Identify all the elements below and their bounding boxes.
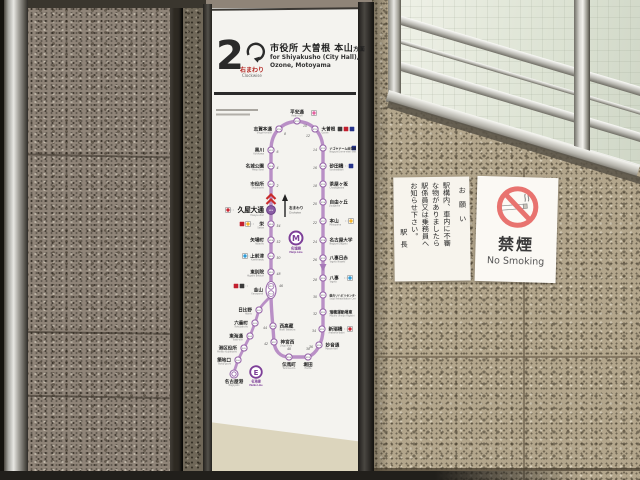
station-M16: M16自由ヶ丘Jiyugaoka20 — [313, 199, 348, 208]
no-smoking-jp: 禁煙 — [475, 230, 557, 256]
clockwise-label-en: Clockwise — [242, 73, 262, 78]
svg-text:Kurokawa: Kurokawa — [253, 153, 264, 156]
transfer-icon-sakuradori — [347, 326, 352, 331]
svg-text:M24: M24 — [317, 345, 322, 347]
svg-text:M14: M14 — [321, 166, 326, 168]
svg-text:44: 44 — [263, 326, 267, 330]
sign-frame — [358, 2, 374, 480]
svg-text:Meiko Line: Meiko Line — [249, 384, 263, 387]
svg-text:M08: M08 — [269, 166, 274, 168]
station-E07: 名古屋港Nagoyako — [225, 370, 244, 387]
transfer-icon-yutorito — [349, 164, 354, 169]
station-M05: M05栄Sakae54 — [240, 221, 281, 230]
svg-text:Tokai-dori: Tokai-dori — [232, 339, 243, 342]
svg-text:M28: M28 — [271, 326, 276, 328]
clockwise-loop-icon — [245, 41, 267, 63]
platform-sign: 2 右まわり Clockwise 市役所 大曽根 本山方面 for Shiyak… — [212, 8, 358, 480]
station-M15: M15茶屋ヶ坂Chayagasaka18 — [313, 181, 348, 190]
svg-text:40: 40 — [287, 347, 291, 351]
svg-text:36: 36 — [309, 345, 313, 349]
svg-text:M09: M09 — [269, 150, 274, 152]
svg-text:Sogo Rehabilitation Center: Sogo Rehabilitation Center — [330, 298, 357, 301]
svg-text:M10: M10 — [277, 129, 282, 131]
map-clockwise-en: Clockwise — [289, 211, 301, 214]
station-M24: M24妙音通Myoon-dori36 — [309, 342, 340, 351]
svg-text:Motoyama: Motoyama — [330, 224, 342, 227]
no-smoking-sign: 禁煙 No Smoking — [475, 176, 559, 283]
svg-text:M22: M22 — [321, 312, 326, 314]
svg-text:50: 50 — [277, 256, 281, 260]
station-notice: お願い 駅構内、車内に不審 な物がありましたら 駅係員又は乗務員へ お知らせ下さ… — [393, 176, 470, 281]
svg-text:M04: M04 — [269, 240, 274, 242]
station-M02: M02東別院Higashi Betsuin48 — [247, 269, 281, 278]
station-M19: M19八事日赤Yagoto Nisseki26 — [313, 255, 348, 264]
svg-text:42: 42 — [264, 342, 268, 346]
svg-text:26: 26 — [313, 258, 317, 262]
svg-text:18: 18 — [313, 184, 317, 188]
transfer-icon-higashiyama — [245, 221, 250, 226]
station-M22: M22瑞穂運動場東Mizuho Undojo Higashi32 — [313, 309, 355, 318]
svg-text:Horita: Horita — [305, 367, 312, 370]
transfer-icon-tsurumai — [242, 253, 247, 258]
svg-text:10: 10 — [303, 124, 307, 128]
station-M01: M01E01金山Kanayama46 — [234, 282, 283, 299]
svg-text:48: 48 — [277, 272, 281, 276]
svg-text:8: 8 — [284, 132, 286, 136]
transfer-icon-jr — [240, 284, 245, 289]
notice-line: 駅構内、車内に不審 — [441, 182, 453, 276]
subway-station-wall-photo: 2 右まわり Clockwise 市役所 大曽根 本山方面 for Shiyak… — [0, 0, 640, 480]
transfer-icon-meitetsu — [344, 127, 349, 132]
station-M12: M12大曽根Ozone12 — [306, 126, 354, 138]
transfer-icon-sakuradori — [225, 207, 230, 212]
svg-text:M02: M02 — [269, 272, 274, 274]
destinations-jp: 市役所 大曽根 本山方面 — [270, 41, 365, 54]
svg-text:12: 12 — [306, 134, 310, 138]
notice-line: 駅係員又は乗務員へ — [419, 182, 431, 276]
notice-line: な物がありましたら — [430, 182, 442, 276]
svg-text:Kanayama: Kanayama — [251, 293, 263, 296]
svg-text:6: 6 — [277, 150, 279, 154]
station-M08: M08名城公園Meijo Koen4 — [246, 163, 279, 172]
station-M28: M28西高蔵Nishi Takakura44 — [263, 323, 296, 332]
svg-text:28: 28 — [313, 278, 317, 282]
transfer-icon-meitetsu — [240, 222, 245, 227]
svg-text:20: 20 — [313, 202, 317, 206]
svg-text:24: 24 — [313, 240, 317, 244]
meiko-line-logo: E 名港線 Meiko Line — [249, 366, 263, 387]
svg-text:M20: M20 — [321, 278, 326, 280]
svg-text:Shiga-hondori: Shiga-hondori — [257, 132, 273, 135]
svg-text:Higashi Betsuin: Higashi Betsuin — [247, 275, 265, 278]
svg-text:54: 54 — [277, 224, 281, 228]
ceiling-shadow — [28, 0, 206, 8]
transfer-icon-meitetsu — [234, 284, 239, 289]
sign-frame — [203, 4, 212, 480]
svg-text:M25: M25 — [306, 357, 311, 359]
route-map: 右まわり Clockwise M 名城線 Meijo Line E 名港線 Me… — [212, 100, 356, 425]
transfer-icon-yutorito — [350, 127, 355, 132]
station-M25: M25堀田Horita38 — [303, 347, 313, 370]
svg-text:Nagoyako: Nagoyako — [229, 384, 241, 387]
svg-text:14: 14 — [313, 148, 317, 152]
clockwise-direction-arrow: 右まわり Clockwise — [282, 194, 303, 217]
tile-seam — [374, 356, 640, 358]
destinations-en-line1: for Shiyakusho (City Hall), — [270, 54, 359, 61]
pillar-side-face — [183, 0, 203, 480]
station-M14: M14砂田橋Sunadabashi16 — [313, 163, 353, 172]
svg-text:M06: M06 — [269, 210, 274, 212]
svg-text:52: 52 — [277, 240, 281, 244]
svg-text:名港線: 名港線 — [251, 379, 261, 384]
header-divider — [214, 92, 356, 95]
station-M23: M23新瑞橋Aratama-bashi34 — [312, 326, 353, 335]
svg-text:46: 46 — [279, 284, 283, 288]
meijo-line-logo: M 名城線 Meijo Line — [289, 232, 303, 255]
granite-pillar — [28, 0, 170, 480]
map-clockwise-jp: 右まわり — [288, 205, 303, 210]
svg-text:M05: M05 — [269, 224, 274, 226]
svg-text:Myoon-dori: Myoon-dori — [326, 348, 339, 351]
direction-arrow-down — [320, 264, 327, 272]
transfer-icon-tsurumai — [347, 275, 352, 280]
sign-top-edge — [212, 7, 358, 11]
svg-text:Tsukiji-guchi: Tsukiji-guchi — [218, 363, 232, 366]
svg-text:M23: M23 — [320, 329, 325, 331]
svg-text:Hibino: Hibino — [245, 313, 253, 316]
svg-text:M15: M15 — [321, 184, 326, 186]
station-M17: M17本山Motoyama22 — [313, 218, 354, 227]
svg-text:Jiyugaoka: Jiyugaoka — [329, 205, 341, 208]
svg-text:M12: M12 — [313, 129, 318, 131]
svg-text:Nishi Takakura: Nishi Takakura — [280, 329, 296, 332]
svg-text:16: 16 — [313, 166, 317, 170]
svg-text:Yagoto: Yagoto — [330, 281, 338, 284]
svg-text:Yabacho: Yabacho — [255, 243, 265, 246]
svg-text:M21: M21 — [321, 295, 326, 297]
svg-text:M01: M01 — [269, 286, 274, 288]
svg-text:M03: M03 — [269, 256, 274, 258]
svg-text:M19: M19 — [321, 258, 326, 260]
svg-text:Yagoto Nisseki: Yagoto Nisseki — [330, 261, 346, 264]
svg-text:Aratama-bashi: Aratama-bashi — [329, 332, 345, 335]
destination-names: 市役所 大曽根 本山 — [270, 44, 353, 54]
svg-text:Meijo Koen: Meijo Koen — [252, 169, 264, 172]
svg-text:Temma-cho: Temma-cho — [283, 367, 296, 370]
window-frame — [388, 0, 401, 96]
svg-text:Meijo Line: Meijo Line — [289, 251, 303, 254]
svg-text:22: 22 — [313, 221, 317, 225]
svg-text:Chayagasaka: Chayagasaka — [330, 187, 345, 190]
wall-shadow — [372, 0, 388, 480]
floor-shadow — [0, 471, 580, 480]
station-M04: M04矢場町Yabacho52 — [249, 237, 280, 246]
svg-text:E: E — [254, 369, 259, 377]
svg-text:M07: M07 — [269, 184, 274, 186]
notice-line: お知らせ下さい。 — [408, 182, 420, 276]
svg-text:Sunadabashi: Sunadabashi — [330, 169, 344, 172]
station-M09: M09黒川Kurokawa6 — [253, 147, 278, 156]
pillar-groove — [170, 0, 183, 480]
station-M03: M03上前津Kamimaezu50 — [242, 253, 280, 262]
no-smoking-icon — [493, 183, 540, 230]
svg-text:Ozone: Ozone — [322, 132, 330, 135]
stations-layer: M09黒川Kurokawa6M08名城公園Meijo Koen4M07市役所Sh… — [216, 109, 356, 388]
svg-text:M26: M26 — [287, 357, 292, 359]
svg-text:Heian-dori: Heian-dori — [291, 114, 303, 117]
svg-text:2: 2 — [277, 184, 279, 188]
svg-text:4: 4 — [277, 166, 279, 170]
svg-text:M27: M27 — [272, 342, 277, 344]
svg-text:久屋大通: 久屋大通 — [238, 205, 265, 214]
svg-text:34: 34 — [312, 329, 316, 333]
svg-text:M17: M17 — [321, 221, 326, 223]
svg-text:M13: M13 — [321, 148, 326, 150]
transfer-icon-kamiiida — [311, 110, 316, 115]
svg-text:M18: M18 — [321, 240, 326, 242]
station-M10: M10志賀本通Shiga-hondori8 — [254, 126, 286, 136]
station-M13: M13ナゴヤドーム前矢田Nagoya Dome-mae Yada14 — [313, 145, 356, 154]
destination-suffix: 方面 — [353, 47, 365, 53]
notice-title: お願い — [456, 182, 468, 276]
destinations-en-line2: Ozone, Motoyama — [270, 62, 331, 69]
transfer-icon-jr — [338, 127, 343, 132]
map-legend-fineprint — [216, 109, 258, 116]
svg-text:32: 32 — [313, 312, 317, 316]
no-smoking-en: No Smoking — [475, 255, 556, 268]
station-M21: M21総合リハビリセンターSogo Rehabilitation Center3… — [313, 292, 356, 301]
svg-text:M16: M16 — [321, 202, 326, 204]
svg-text:Sakae: Sakae — [257, 227, 264, 230]
stainless-panel — [4, 0, 28, 480]
station-E04: E04東海通Tokai-dori — [229, 333, 253, 342]
svg-text:M11: M11 — [295, 121, 300, 123]
svg-text:M: M — [292, 234, 300, 243]
transfer-icon-higashiyama — [348, 218, 353, 223]
svg-text:Shiyakusho: Shiyakusho — [252, 187, 265, 190]
svg-text:30: 30 — [313, 295, 317, 299]
svg-text:Mizuho Undojo Higashi: Mizuho Undojo Higashi — [330, 315, 355, 318]
svg-text:Nagoya Daigaku: Nagoya Daigaku — [330, 243, 349, 246]
svg-text:Nagoya Dome-mae Yada: Nagoya Dome-mae Yada — [330, 151, 357, 154]
station-M20: M20八事Yagoto28 — [313, 275, 353, 284]
station-M18: M18名古屋大学Nagoya Daigaku24 — [313, 237, 353, 246]
svg-text:Rokubancho: Rokubancho — [235, 326, 249, 329]
svg-text:Minato Kuyakusho: Minato Kuyakusho — [217, 351, 238, 354]
svg-text:名城線: 名城線 — [291, 246, 302, 251]
station-M07: M07市役所Shiyakusho2 — [250, 181, 278, 190]
station-M06: M06久屋大通Hisaya-odori — [225, 205, 275, 217]
svg-text:Hisaya-odori: Hisaya-odori — [250, 214, 264, 217]
svg-text:Kamimaezu: Kamimaezu — [251, 259, 264, 262]
notice-text: お願い 駅構内、車内に不審 な物がありましたら 駅係員又は乗務員へ お知らせ下さ… — [393, 176, 472, 281]
